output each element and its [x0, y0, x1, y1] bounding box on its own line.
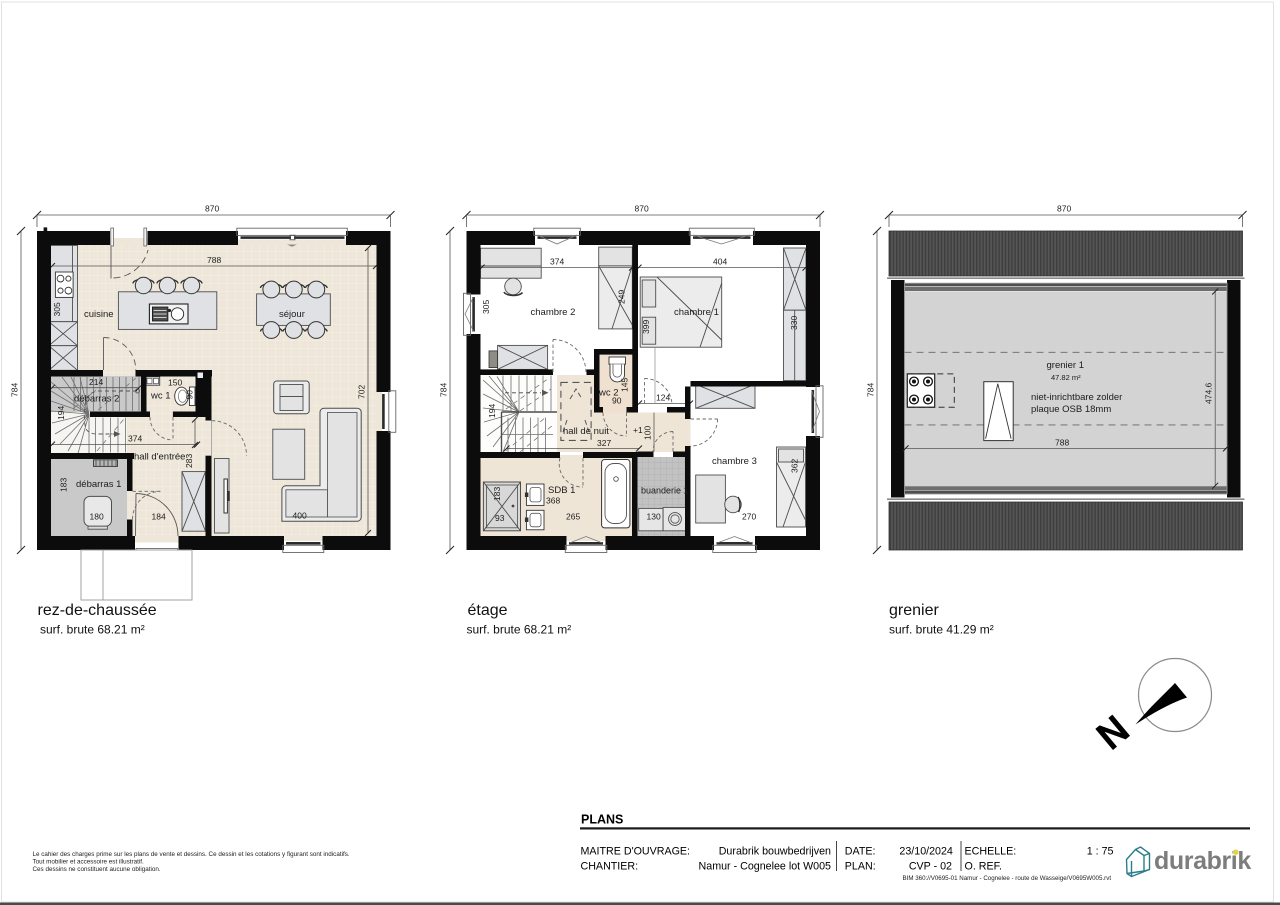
svg-text:débarras 2: débarras 2 — [74, 394, 119, 405]
svg-text:CVP - 02: CVP - 02 — [909, 861, 952, 873]
svg-text:368: 368 — [546, 496, 560, 506]
svg-text:chambre 1: chambre 1 — [674, 307, 719, 318]
svg-text:MAITRE D'OUVRAGE:: MAITRE D'OUVRAGE: — [581, 846, 691, 858]
svg-text:702: 702 — [357, 385, 367, 399]
svg-text:chambre 3: chambre 3 — [712, 456, 757, 467]
svg-text:870: 870 — [635, 204, 649, 214]
svg-text:249: 249 — [617, 290, 627, 304]
svg-text:grenier: grenier — [889, 602, 939, 619]
svg-text:+1: +1 — [633, 425, 643, 435]
svg-text:150: 150 — [168, 378, 182, 388]
svg-text:rez-de-chaussée: rez-de-chaussée — [38, 602, 157, 619]
svg-text:Le cahier des charges prime su: Le cahier des charges prime sur les plan… — [33, 851, 350, 858]
svg-text:Durabrik bouwbedrijven: Durabrik bouwbedrijven — [719, 846, 831, 858]
svg-text:surf. brute 68.21 m²: surf. brute 68.21 m² — [467, 623, 572, 637]
svg-text:BIM 360://V0695-01 Namur - Cog: BIM 360://V0695-01 Namur - Cognelee - ro… — [903, 875, 1112, 882]
svg-text:194: 194 — [487, 404, 497, 418]
svg-text:374: 374 — [550, 257, 564, 267]
svg-text:ECHELLE:: ECHELLE: — [965, 846, 1017, 858]
svg-text:194: 194 — [56, 406, 66, 420]
svg-text:niet-inrichtbare zolder: niet-inrichtbare zolder — [1031, 392, 1122, 403]
svg-text:265: 265 — [566, 512, 580, 522]
svg-text:débarras 1: débarras 1 — [76, 479, 121, 490]
svg-text:784: 784 — [866, 383, 876, 397]
svg-text:870: 870 — [1057, 204, 1071, 214]
svg-text:305: 305 — [52, 302, 62, 316]
svg-text:1 : 75: 1 : 75 — [1087, 846, 1114, 858]
svg-text:784: 784 — [439, 383, 449, 397]
svg-text:hall de nuit: hall de nuit — [563, 426, 609, 437]
svg-text:362: 362 — [790, 459, 800, 473]
svg-text:surf. brute 68.21 m²: surf. brute 68.21 m² — [40, 623, 145, 637]
svg-text:183: 183 — [492, 487, 502, 501]
svg-text:90: 90 — [185, 390, 195, 400]
svg-text:90: 90 — [612, 396, 622, 406]
svg-text:788: 788 — [1055, 438, 1069, 448]
svg-text:23/10/2024: 23/10/2024 — [899, 846, 953, 858]
svg-text:870: 870 — [205, 204, 219, 214]
svg-text:surf. brute 41.29 m²: surf. brute 41.29 m² — [889, 623, 994, 637]
svg-text:SDB 1: SDB 1 — [548, 485, 575, 496]
svg-text:Tout mobilier et accessoire es: Tout mobilier et accessoire est illustra… — [33, 859, 145, 866]
svg-text:chambre 2: chambre 2 — [531, 307, 576, 318]
svg-text:PLAN:: PLAN: — [845, 861, 876, 873]
svg-text:Ces dessins ne constituent auc: Ces dessins ne constituent aucune obliga… — [33, 866, 161, 873]
svg-text:270: 270 — [742, 512, 756, 522]
svg-text:130: 130 — [647, 512, 661, 522]
svg-text:183: 183 — [59, 478, 69, 492]
svg-text:145: 145 — [620, 378, 630, 392]
svg-text:124: 124 — [656, 393, 670, 403]
svg-text:47.82 m²: 47.82 m² — [1051, 373, 1081, 382]
svg-text:grenier 1: grenier 1 — [1047, 360, 1085, 371]
svg-text:330: 330 — [789, 316, 799, 330]
svg-text:buanderie 1: buanderie 1 — [641, 486, 689, 496]
svg-text:404: 404 — [713, 257, 727, 267]
svg-text:788: 788 — [207, 255, 221, 265]
svg-text:283: 283 — [184, 454, 194, 468]
svg-text:399: 399 — [641, 320, 651, 334]
svg-text:180: 180 — [90, 512, 104, 522]
svg-text:O. REF.: O. REF. — [965, 861, 1002, 873]
svg-text:Namur - Cognelee lot W005: Namur - Cognelee lot W005 — [699, 861, 832, 873]
svg-text:étage: étage — [468, 602, 508, 619]
svg-text:100: 100 — [643, 426, 653, 440]
svg-text:305: 305 — [481, 300, 491, 314]
svg-text:DATE:: DATE: — [845, 846, 876, 858]
svg-text:cuisine: cuisine — [84, 309, 114, 320]
svg-text:plaque OSB 18mm: plaque OSB 18mm — [1031, 404, 1111, 415]
svg-text:214: 214 — [89, 377, 103, 387]
svg-text:hall d'entrée: hall d'entrée — [134, 452, 185, 463]
svg-text:séjour: séjour — [279, 309, 305, 320]
svg-text:784: 784 — [10, 383, 20, 397]
svg-text:184: 184 — [152, 512, 166, 522]
svg-text:CHANTIER:: CHANTIER: — [581, 861, 639, 873]
svg-text:wc 1: wc 1 — [150, 391, 171, 402]
svg-text:PLANS: PLANS — [581, 813, 623, 827]
svg-text:93: 93 — [495, 513, 505, 523]
svg-text:400: 400 — [293, 511, 307, 521]
svg-text:374: 374 — [128, 434, 142, 444]
svg-text:327: 327 — [597, 438, 611, 448]
svg-text:474.6: 474.6 — [1204, 382, 1214, 404]
